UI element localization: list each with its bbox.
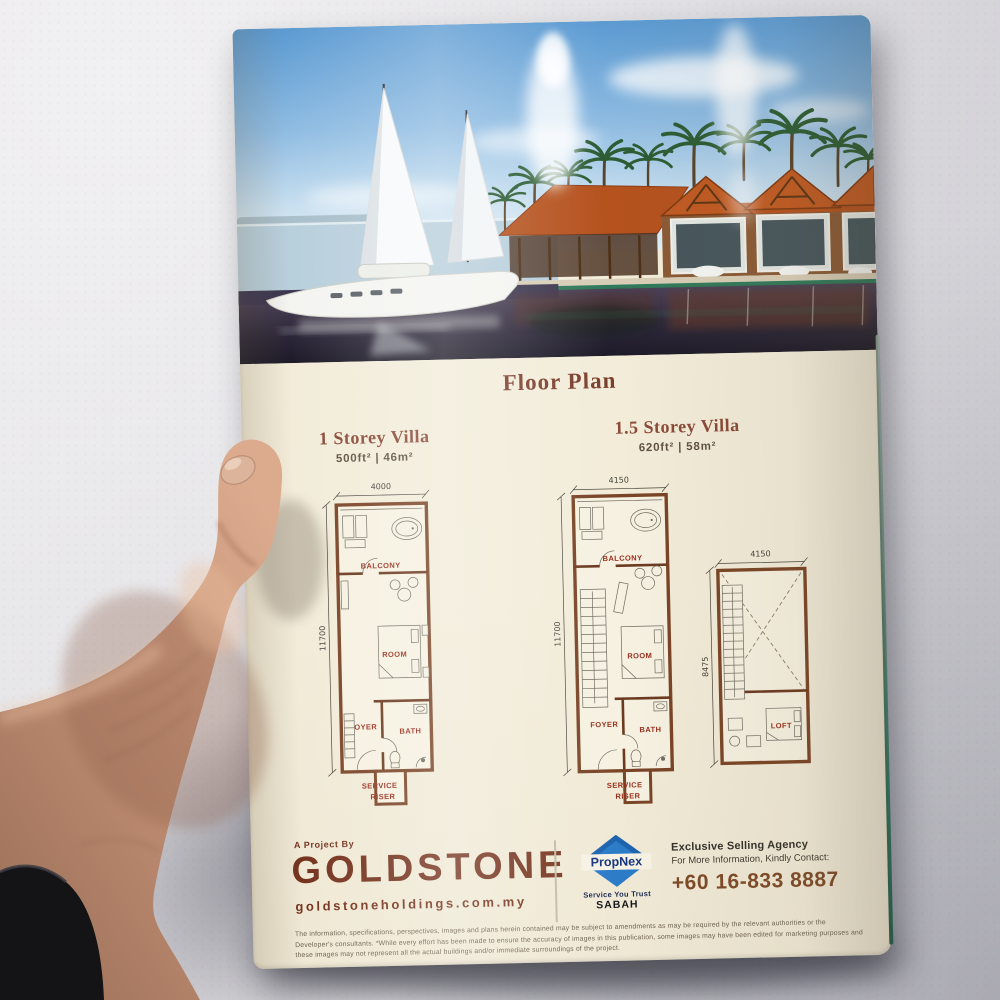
photo-scene: Floor Plan 1 Storey Villa 500ft² | 46m² …	[0, 0, 1000, 1000]
jacket-sleeve	[0, 866, 104, 1000]
villa-1-wardrobe	[344, 714, 355, 758]
villa-1-balcony-label: BALCONY	[361, 561, 401, 571]
villa-1p5-riser-label: RISER	[615, 791, 640, 801]
goldstone-wordmark: GOLDSTONE	[291, 844, 568, 893]
villa-1p5-balcony-label: BALCONY	[602, 553, 642, 563]
cover-photo	[232, 15, 877, 364]
propnex-diamond-icon: PropNex	[581, 834, 652, 888]
villa-1-riser-label: RISER	[370, 792, 395, 802]
sleeve-edge-highlight	[0, 866, 66, 882]
loft-label: LOFT	[771, 721, 792, 730]
contact-note: For More Information, Kindly Contact:	[671, 851, 886, 867]
villa-1-height-dim: 11700	[318, 626, 328, 652]
villa-1p5-title: 1.5 Storey Villa	[569, 414, 784, 440]
villa-1p5-bath-label: BATH	[639, 725, 661, 734]
loft-staircase	[722, 585, 745, 699]
propnex-logo: PropNex Service You Trust SABAH	[569, 834, 665, 912]
villa-1p5-service-label: SERVICE	[607, 780, 643, 790]
forearm-highlight	[0, 648, 160, 718]
villa-1p5-room-label: ROOM	[627, 651, 652, 661]
villa-1p5-staircase	[580, 589, 608, 708]
contact-phone: +60 16-833 8887	[672, 867, 887, 896]
villa-1-bath-label: BATH	[399, 726, 421, 735]
propnex-name: PropNex	[581, 853, 651, 871]
villa-1-floorplan: 4000 11700 BALCONY ROOM	[315, 475, 448, 823]
villa-1-width-dim: 4000	[371, 482, 392, 491]
villa-1p5-ground-floorplan: 4150 11700 BALCONY ROOM	[548, 469, 691, 817]
villa-1p5-loft-floorplan: 4150 8475 LOFT	[696, 530, 862, 784]
loft-height-dim: 8475	[701, 657, 710, 678]
villa-1-service-label: SERVICE	[362, 781, 398, 791]
goldstone-website: goldstoneholdings.com.my	[295, 894, 527, 914]
villa-1-room-label: ROOM	[382, 650, 407, 660]
villa-1-title: 1 Storey Villa	[272, 425, 477, 451]
brochure-page: Floor Plan 1 Storey Villa 500ft² | 46m² …	[232, 15, 891, 969]
disclaimer-text: The information, specifications, perspec…	[295, 917, 864, 961]
floor-plan-title: Floor Plan	[240, 362, 878, 402]
contact-block: Exclusive Selling Agency For More Inform…	[671, 837, 887, 896]
villa-1p5-area: 620ft² | 58m²	[570, 439, 785, 456]
villa-1-area: 500ft² | 46m²	[272, 450, 477, 467]
loft-width-dim: 4150	[750, 549, 771, 558]
propnex-region: SABAH	[570, 898, 664, 912]
villa-1p5-width-dim: 4150	[608, 475, 629, 484]
villa-1p5-foyer-label: FOYER	[590, 720, 618, 730]
villa-1p5-height-dim: 11700	[553, 621, 563, 647]
thumb-nail-highlight	[223, 455, 244, 472]
